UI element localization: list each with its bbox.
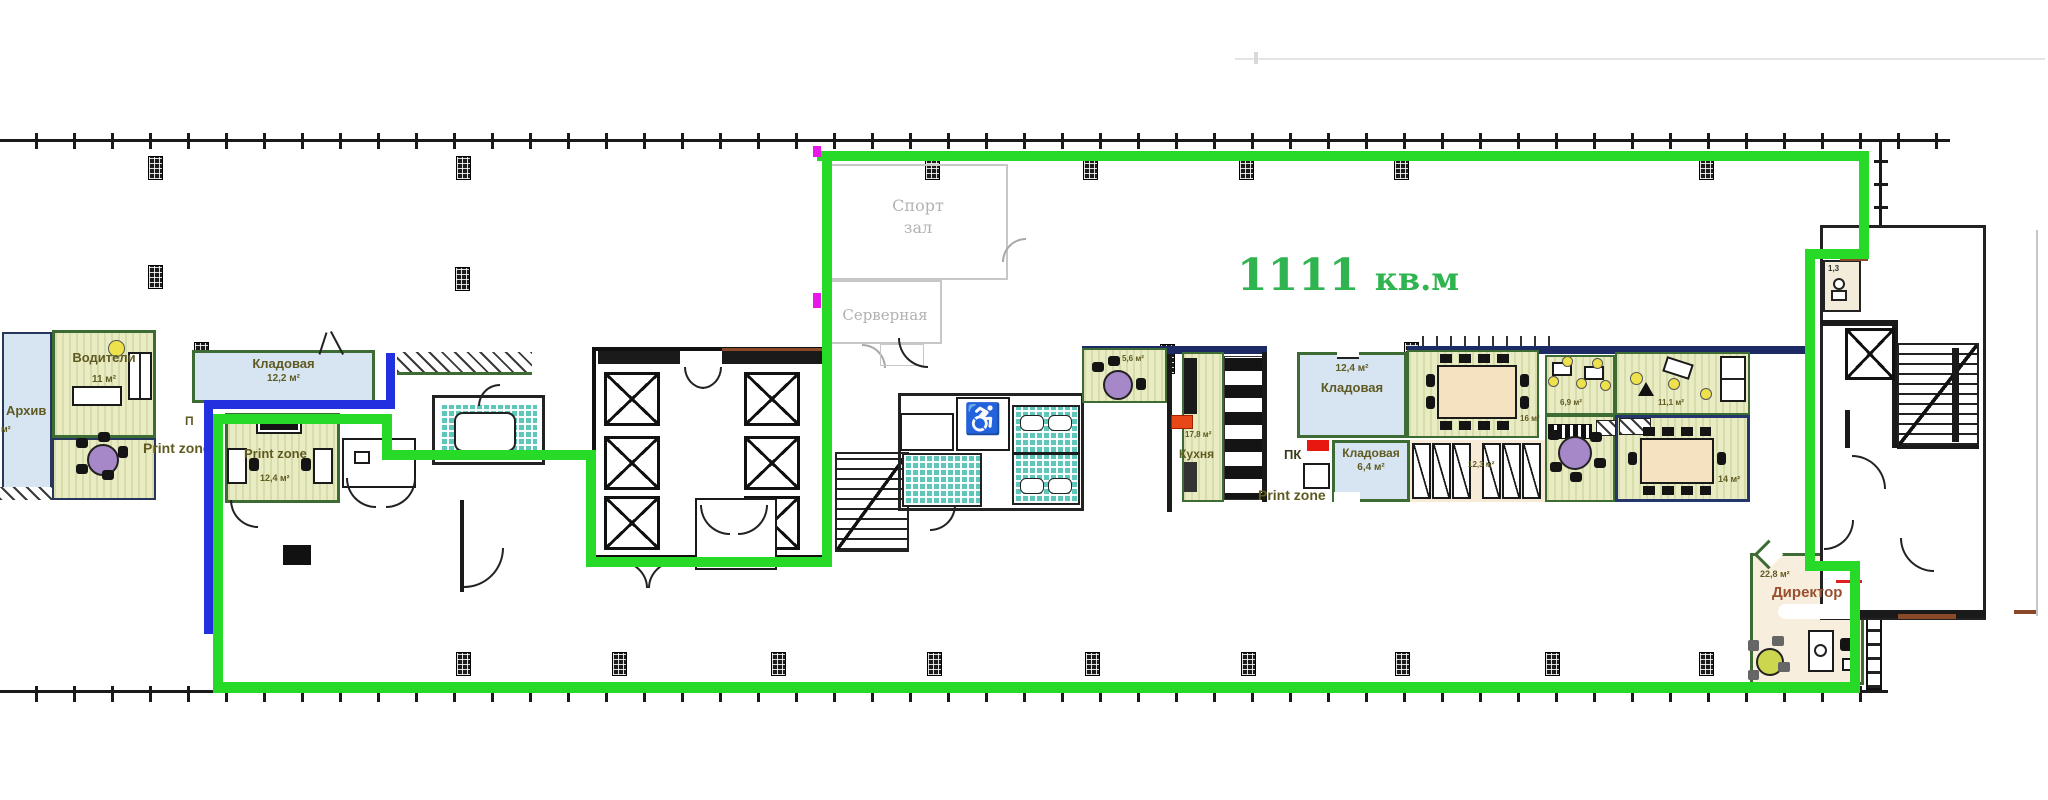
label-lockers: 12,3 м² (1468, 460, 1494, 469)
magenta-marker (813, 293, 821, 308)
column-icon (1395, 652, 1410, 676)
label-printzone-room: Print zone (244, 446, 307, 461)
label-printzone-room-area: 12,4 м² (260, 473, 290, 483)
faint-grid-mark (1254, 52, 1258, 64)
label-kladovaya64: Кладовая (1332, 446, 1410, 460)
balcony-sill (2014, 610, 2036, 614)
label-room14: 14 м² (1718, 474, 1740, 484)
chair-icon (1778, 662, 1790, 672)
lease-boundary-right (1805, 249, 1815, 569)
kitchen-counter-icon (1184, 462, 1197, 492)
label-voditeli-area: 11 м² (52, 374, 156, 385)
label-wc13: 1,3 (1828, 264, 1839, 273)
wc-tiles (902, 453, 982, 507)
column-icon (455, 267, 470, 291)
toilet-icon (1020, 478, 1044, 494)
lease-boundary-left (213, 414, 223, 693)
wall (1820, 320, 1898, 326)
chair-icon (1520, 374, 1529, 387)
column-icon (1085, 652, 1100, 676)
chair-icon (1700, 388, 1712, 400)
label-arhiv: Архив (6, 403, 46, 418)
chair-icon (76, 438, 88, 448)
chair-icon (1550, 462, 1562, 472)
label-printzone-right: Print zone (1258, 487, 1326, 503)
label-arhiv-area: м² (1, 424, 11, 434)
chair-icon (76, 464, 88, 474)
wheelchair-icon: ♿ (964, 402, 1001, 437)
alert-marker (1171, 415, 1193, 429)
stair-rail (1952, 348, 1959, 442)
core-top-trim (722, 348, 826, 351)
chair-icon (1668, 378, 1680, 390)
column-icon (771, 652, 786, 676)
door-arc-icon (346, 478, 376, 508)
chair-icon (1600, 380, 1611, 391)
chair-row-icon (1643, 486, 1711, 495)
label-kladovaya122: Кладовая (192, 356, 375, 371)
lease-boundary-segment (1859, 151, 1869, 257)
door-arc-icon (464, 548, 504, 588)
chair-icon (1426, 374, 1435, 387)
chair-icon (1748, 640, 1759, 651)
sink-icon (1020, 415, 1044, 431)
chair-row-icon (1440, 421, 1516, 430)
window-sill-hatch (0, 487, 54, 500)
wall (1262, 352, 1267, 502)
chair-icon (1548, 430, 1560, 440)
chair-icon (1562, 356, 1573, 367)
label-pk-left: П (185, 414, 194, 428)
column-icon (148, 265, 163, 289)
office-chair-icon (1814, 644, 1827, 657)
locker-icon (1502, 443, 1521, 499)
label-sport-1: Спорт (828, 196, 1008, 215)
toilet-icon (1833, 278, 1845, 290)
pk-marker (1307, 440, 1329, 451)
blue-boundary-segment (204, 400, 395, 409)
chair-icon (1520, 396, 1529, 409)
wall (1845, 410, 1850, 448)
landing-wall (1897, 445, 1979, 449)
chair-icon (102, 470, 114, 480)
stairs-icon (1897, 343, 1979, 447)
lease-boundary-segment (586, 450, 596, 567)
column-icon (1699, 652, 1714, 676)
label-kitchen: Кухня (1179, 447, 1214, 461)
total-area-unit: кв.м (1375, 260, 1459, 298)
column-icon (927, 652, 942, 676)
column-icon (456, 652, 471, 676)
door-sill (1898, 614, 1956, 619)
elevator-shaft-icon (1845, 328, 1895, 380)
elevator-shaft-icon (744, 372, 800, 426)
window-ticks (1410, 336, 1550, 346)
locker-icon (1412, 443, 1431, 499)
desk-icon (72, 386, 122, 406)
faint-grid-line (1235, 58, 2045, 60)
sink-icon (1048, 415, 1072, 431)
window-wall-hatch (397, 352, 532, 375)
chair-row-icon (1643, 427, 1711, 436)
top-facade-wall (0, 139, 1950, 142)
total-area-value: 1111 (1237, 250, 1359, 301)
magenta-marker (813, 146, 821, 157)
chair-icon (1576, 378, 1587, 389)
label-pk-right: ПК (1284, 447, 1301, 462)
chair-icon (1590, 432, 1602, 442)
label-server: Серверная (828, 306, 942, 324)
blue-boundary-segment (204, 400, 213, 634)
column-icon (1241, 652, 1256, 676)
label-kladovaya124-area: 12,4 м² (1297, 363, 1407, 374)
canteen-seating (1224, 356, 1264, 500)
label-room16: 16 м² (1520, 414, 1540, 423)
label-room56: 5,6 м² (1122, 354, 1144, 363)
topright-facade-wall (1879, 141, 1882, 229)
meeting-table-icon (1437, 365, 1517, 419)
round-table-icon (1558, 436, 1592, 470)
locker-icon (1452, 443, 1471, 499)
table-icon (354, 451, 370, 464)
lease-boundary-segment (382, 450, 596, 460)
round-table-icon (1103, 370, 1133, 400)
locker-icon (1432, 443, 1451, 499)
chair-icon (1108, 356, 1120, 366)
label-director: Директор (1772, 584, 1842, 601)
wc-divider (1012, 452, 1080, 455)
chair-icon (1592, 358, 1603, 369)
elevator-shaft-icon (744, 436, 800, 490)
meeting-table-icon (1640, 438, 1714, 484)
door-notch (1337, 349, 1359, 359)
wc-room (900, 413, 954, 451)
locker-icon (1482, 443, 1501, 499)
printer-icon (260, 424, 298, 430)
label-kladovaya64-area: 6,4 м² (1332, 462, 1410, 473)
desk-icon (313, 448, 333, 484)
core-top-band (722, 351, 826, 364)
column-icon (148, 156, 163, 180)
label-printzone-left: Print zone (143, 440, 211, 456)
toilet-icon (1048, 478, 1072, 494)
column-icon (456, 156, 471, 180)
door-arc-icon (230, 500, 258, 528)
chair-row-icon (1440, 354, 1516, 363)
chair-icon (1136, 378, 1146, 390)
core-top-band (598, 351, 680, 364)
total-area-label: 1111 кв.м (1237, 250, 1459, 301)
toilet-icon (1831, 290, 1847, 301)
chair-icon (1548, 376, 1559, 387)
door-arc-icon (930, 505, 956, 531)
label-sport-2: зал (828, 218, 1008, 237)
elevator-shaft-icon (604, 436, 660, 490)
door-arc-icon (478, 384, 500, 406)
wall (1167, 348, 1172, 512)
lease-boundary-segment (213, 414, 391, 424)
chair-icon (1748, 670, 1759, 680)
elevator-shaft-icon (604, 372, 660, 426)
erased-label-area (1778, 604, 1860, 619)
lease-boundary-segment (586, 557, 832, 567)
chair-icon (118, 446, 128, 458)
kitchen-counter-icon (1184, 358, 1197, 414)
floor-plan: ♿ (0, 0, 2048, 800)
label-room69: 6,9 м² (1560, 398, 1582, 407)
door-notch (1334, 492, 1360, 502)
label-director-area: 22,8 м² (1760, 569, 1790, 579)
label-kladovaya124: Кладовая (1297, 380, 1407, 395)
chair-icon (1570, 472, 1582, 482)
label-kitchen-area: 17,8 м² (1185, 430, 1211, 439)
lease-boundary-bottom (213, 682, 1860, 693)
chair-icon (1092, 362, 1104, 372)
locker-icon (1522, 443, 1541, 499)
label-kladovaya122-area: 12,2 м² (192, 373, 375, 384)
chair-icon (1717, 452, 1726, 465)
column-icon (612, 652, 627, 676)
tub-icon (454, 412, 516, 452)
lease-boundary-top (817, 151, 1869, 161)
equipment-box (283, 545, 311, 565)
pk-desk-icon (1303, 463, 1330, 489)
label-voditeli: Водители (52, 350, 156, 365)
label-room111: 11,1 м² (1658, 398, 1684, 407)
chair-icon (1426, 396, 1435, 409)
door-arc-icon (386, 478, 416, 508)
cabinet-icon (1720, 356, 1746, 402)
chair-icon (1594, 458, 1606, 468)
elevator-shaft-icon (604, 496, 660, 550)
chair-icon (1628, 452, 1637, 465)
chair-icon (1772, 636, 1784, 646)
chair-icon (98, 432, 110, 442)
lease-boundary-segment (1850, 561, 1860, 691)
column-icon (1545, 652, 1560, 676)
balcony-edge-line (2036, 230, 2038, 616)
chair-icon (1630, 372, 1643, 385)
lease-boundary-segment (822, 151, 832, 567)
